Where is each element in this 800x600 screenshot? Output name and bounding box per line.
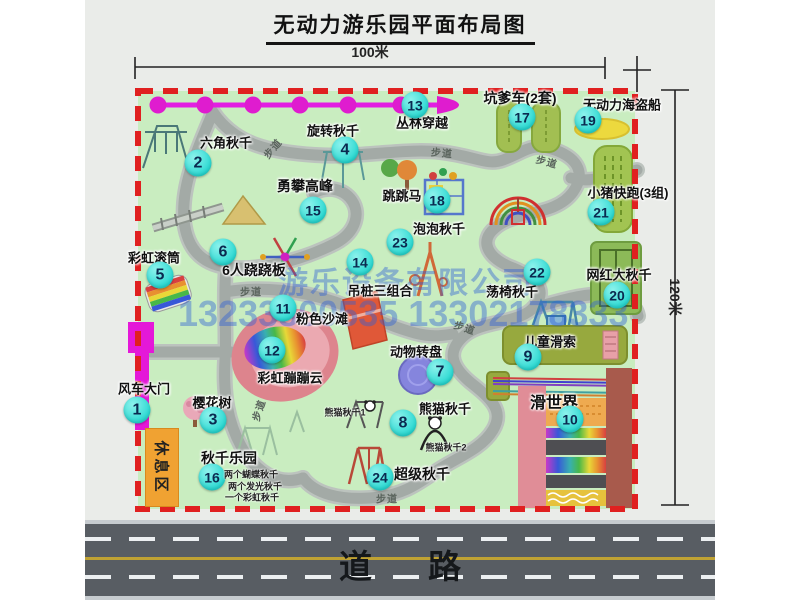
attraction-badge-1: 1 bbox=[124, 397, 151, 424]
attraction-label-15: 勇攀高峰 bbox=[277, 176, 333, 196]
walkway-label: 步道 bbox=[430, 144, 453, 161]
page-title: 无动力游乐园平面布局图 bbox=[85, 9, 715, 45]
screenshot: 无动力游乐园平面布局图 bbox=[0, 0, 800, 600]
walkway-label: 步道 bbox=[452, 316, 478, 337]
attraction-badge-8: 8 bbox=[390, 410, 417, 437]
attraction-label-23: 泡泡秋千 bbox=[413, 219, 465, 238]
attraction-badge-16: 16 bbox=[199, 464, 226, 491]
attraction-badge-20: 20 bbox=[604, 282, 631, 309]
rest-area: 休息区 bbox=[145, 428, 179, 507]
attraction-label-6: 6人跷跷板 bbox=[222, 260, 286, 280]
attraction-badge-22: 22 bbox=[524, 259, 551, 286]
attraction-label-1: 风车大门 bbox=[118, 379, 170, 398]
attraction-label-8: 熊猫秋千 bbox=[419, 399, 471, 418]
attraction-label-4: 旋转秋千 bbox=[307, 121, 359, 140]
attraction-badge-6: 6 bbox=[210, 239, 237, 266]
walkway-label: 步道 bbox=[534, 151, 559, 171]
attraction-sublabel: 一个彩虹秋千 bbox=[225, 491, 279, 504]
attraction-badge-11: 11 bbox=[270, 295, 297, 322]
walkway-label: 步道 bbox=[259, 135, 285, 161]
attraction-sublabel: 熊猫秋千2 bbox=[425, 441, 466, 454]
rest-area-label: 休息区 bbox=[152, 440, 173, 494]
attraction-badge-12: 12 bbox=[259, 337, 286, 364]
attraction-badge-14: 14 bbox=[347, 249, 374, 276]
attraction-label-11: 粉色沙滩 bbox=[296, 309, 348, 328]
walkway-label: 步道 bbox=[376, 491, 398, 506]
attraction-sublabel: 熊猫秋千1 bbox=[324, 406, 365, 419]
walkway-label: 步道 bbox=[247, 397, 268, 423]
labels-layer: 步道步道步道步道步道步道步道风车大门1六角秋千2樱花树3旋转秋千4彩虹滚筒56人… bbox=[85, 0, 715, 600]
attraction-label-14: 吊桩三组合 bbox=[347, 281, 412, 300]
walkway-label: 步道 bbox=[240, 284, 262, 299]
attraction-badge-10: 10 bbox=[557, 406, 584, 433]
attraction-label-18: 跳跳马 bbox=[382, 186, 421, 205]
attraction-badge-21: 21 bbox=[588, 199, 615, 226]
attraction-badge-13: 13 bbox=[402, 92, 429, 119]
attraction-badge-2: 2 bbox=[185, 150, 212, 177]
attraction-label-12: 彩虹蹦蹦云 bbox=[257, 368, 322, 387]
attraction-badge-9: 9 bbox=[515, 344, 542, 371]
attraction-badge-4: 4 bbox=[332, 137, 359, 164]
attraction-badge-15: 15 bbox=[300, 197, 327, 224]
attraction-badge-17: 17 bbox=[509, 104, 536, 131]
attraction-label-24: 超级秋千 bbox=[394, 464, 450, 484]
attraction-badge-18: 18 bbox=[424, 187, 451, 214]
attraction-badge-24: 24 bbox=[367, 464, 394, 491]
attraction-label-7: 动物转盘 bbox=[390, 342, 442, 361]
attraction-label-22: 荡椅秋千 bbox=[486, 282, 538, 301]
attraction-label-20: 网红大秋千 bbox=[586, 265, 651, 284]
road-label: 道路 bbox=[85, 540, 715, 588]
road: 道路 bbox=[85, 520, 715, 600]
attraction-label-2: 六角秋千 bbox=[200, 133, 252, 152]
attraction-badge-3: 3 bbox=[200, 407, 227, 434]
attraction-badge-7: 7 bbox=[427, 359, 454, 386]
attraction-badge-19: 19 bbox=[575, 107, 602, 134]
park-plan-photo: 无动力游乐园平面布局图 bbox=[85, 0, 715, 600]
attraction-badge-5: 5 bbox=[147, 262, 174, 289]
attraction-badge-23: 23 bbox=[387, 229, 414, 256]
